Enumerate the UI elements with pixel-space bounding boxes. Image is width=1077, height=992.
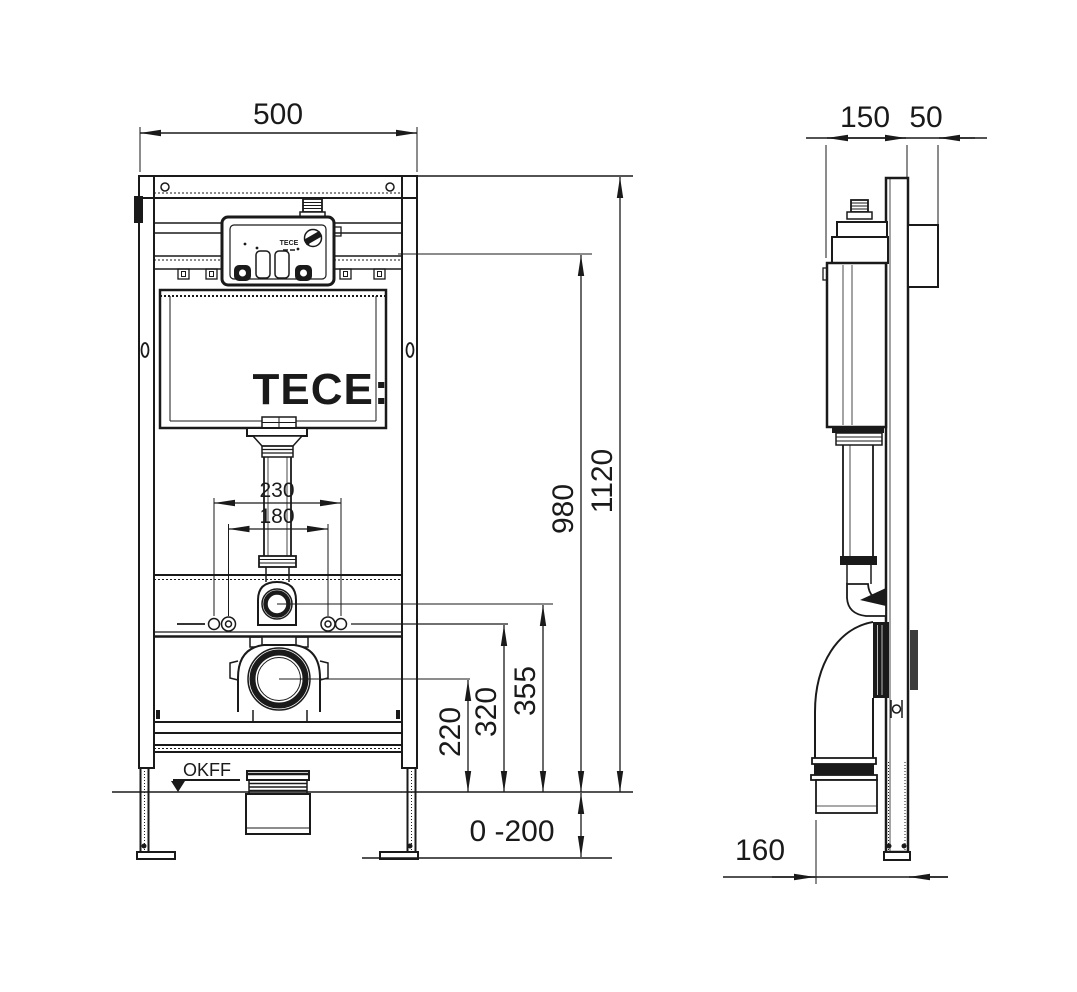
- okff-text: OKFF: [183, 760, 231, 780]
- dim-980-text: 980: [547, 484, 580, 534]
- wall-box: [908, 225, 938, 287]
- dim-foot-adjust-text: 0 -200: [469, 815, 554, 848]
- dim-230-text: 230: [259, 479, 294, 502]
- dim-220-text: 220: [434, 707, 467, 757]
- dim-355-text: 355: [509, 666, 542, 716]
- dim-1120-text: 1120: [586, 449, 619, 514]
- dim-50-text: 50: [909, 101, 942, 134]
- drain-outlet-side: [811, 758, 877, 813]
- tece-logo: TECE:: [253, 365, 390, 414]
- side-rail: [886, 178, 908, 852]
- cistern-side: [823, 200, 888, 445]
- fill-valve-side: [847, 200, 872, 219]
- dim-320-text: 320: [470, 687, 503, 737]
- unit-brand-label: TECE: [280, 240, 299, 247]
- fill-valve: [300, 199, 325, 218]
- technical-drawing-page: TECE: [0, 0, 1077, 992]
- drain-outlet-front: [246, 771, 310, 834]
- dim-500-text: 500: [253, 98, 303, 131]
- dim-180-text: 180: [259, 505, 294, 528]
- installation-frame-drawing: TECE: [0, 0, 1077, 992]
- cistern: TECE:: [160, 290, 390, 428]
- dim-160-text: 160: [735, 834, 785, 867]
- dim-150-text: 150: [840, 101, 890, 134]
